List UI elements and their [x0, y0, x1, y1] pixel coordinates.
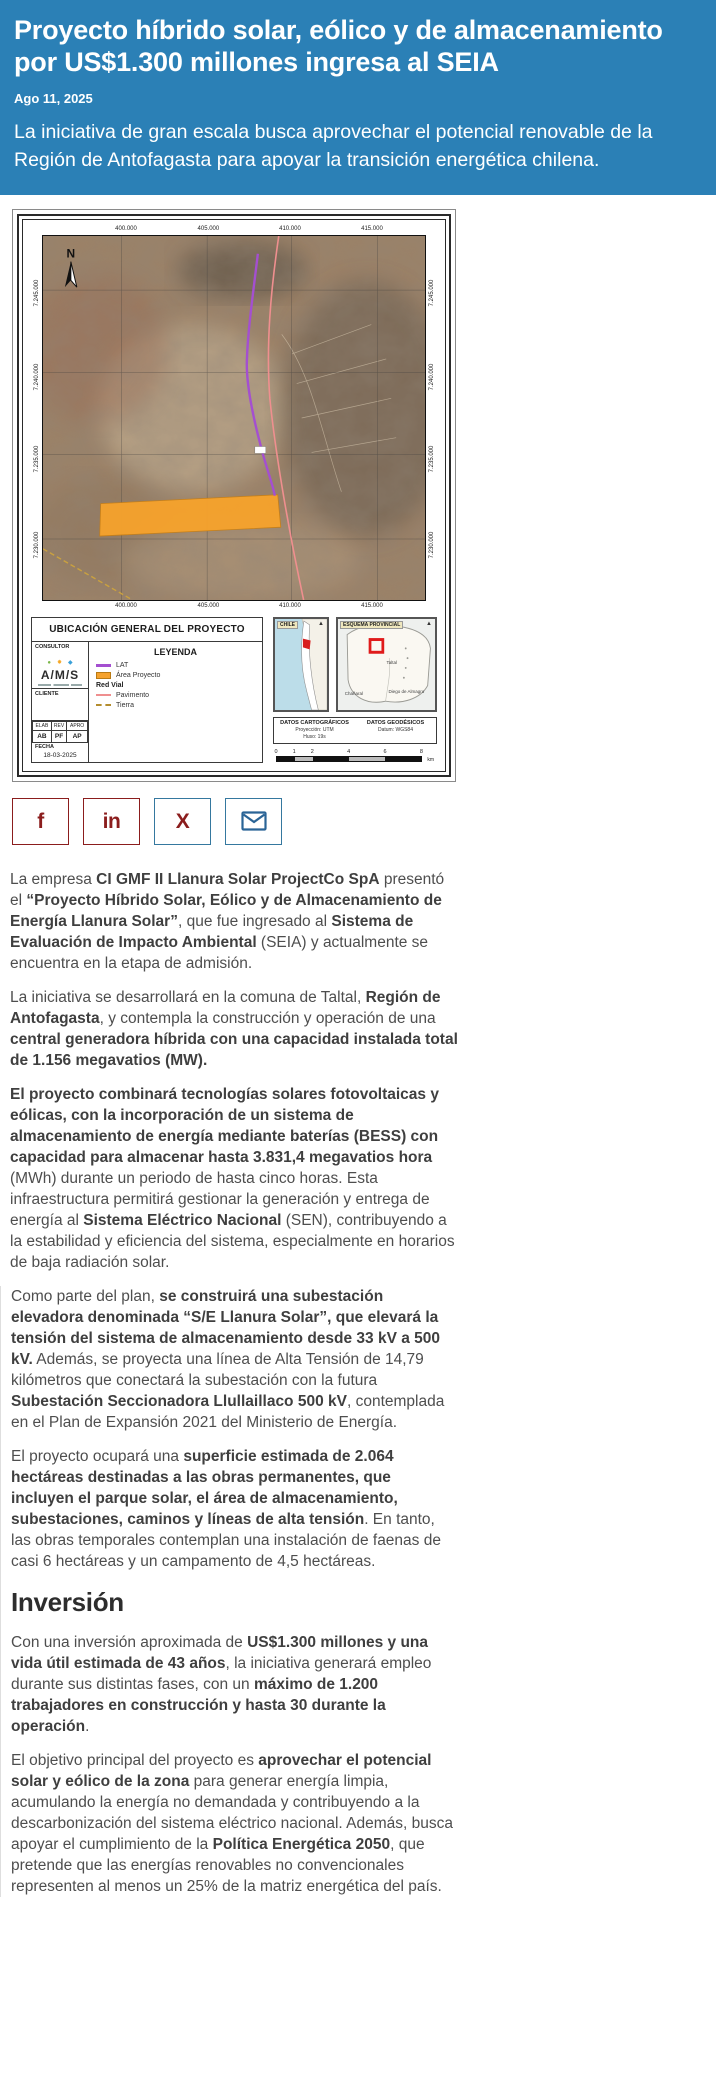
legend-items: LATÁrea ProyectoRed VialPavimentoTierra [96, 662, 255, 709]
coord-label: 405.000 [198, 226, 220, 232]
article-header: Proyecto híbrido solar, eólico y de alma… [0, 0, 716, 195]
share-row: finX [12, 798, 716, 845]
coord-label: 7.245.000 [429, 279, 435, 307]
map-coords-top: 400.000405.000410.000415.000 [51, 226, 417, 235]
email-icon [241, 811, 267, 831]
consultor-logo: ●✸◆ A/M/S [32, 651, 88, 688]
facebook-share-button[interactable]: f [12, 798, 69, 845]
article-paragraph: La empresa CI GMF II Llanura Solar Proje… [10, 869, 458, 974]
legend-item: Pavimento [96, 692, 255, 699]
legend-swatch [96, 704, 111, 706]
chile-inset-map: CHILE ▲ [273, 617, 329, 712]
coord-label: 7.230.000 [429, 531, 435, 559]
coord-label: 410.000 [279, 603, 301, 609]
coord-label: 7.240.000 [34, 363, 40, 391]
project-location-map: 400.000405.000410.000415.000 7.245.0007.… [12, 209, 456, 782]
article-paragraph: La iniciativa se desarrollará en la comu… [10, 987, 458, 1071]
legend-item: Área Proyecto [96, 672, 255, 679]
legend-swatch [96, 694, 111, 696]
cliente-label: CLIENTE [32, 689, 88, 697]
map-frame-outer: 400.000405.000410.000415.000 7.245.0007.… [17, 214, 451, 777]
coord-label: 410.000 [279, 226, 301, 232]
approval-table: ELAB REV APRO AB PF AP [32, 720, 88, 743]
legend-item: Red Vial [96, 682, 255, 689]
linkedin-icon: in [103, 811, 121, 832]
consultor-label: CONSULTOR [32, 642, 88, 650]
map-legend: LEYENDA LATÁrea ProyectoRed VialPaviment… [89, 642, 262, 762]
coord-label: 7.230.000 [34, 531, 40, 559]
north-arrow-icon: ▲ [426, 621, 432, 627]
satellite-terrain: N [43, 236, 425, 600]
linkedin-share-button[interactable]: in [83, 798, 140, 845]
provincial-inset-map: ESQUEMA PROVINCIAL ▲ Taltal Chañaral [336, 617, 437, 712]
legend-item: LAT [96, 662, 255, 669]
email-share-button[interactable] [225, 798, 282, 845]
drop-icon: ◆ [68, 660, 73, 666]
map-reference-block: CHILE ▲ ESQUEMA PROVINCIAL ▲ [273, 617, 437, 763]
map-title: UBICACIÓN GENERAL DEL PROYECTO [32, 618, 262, 642]
map-info-panel: UBICACIÓN GENERAL DEL PROYECTO CONSULTOR… [31, 617, 437, 763]
article-paragraph: El objetivo principal del proyecto es ap… [11, 1750, 458, 1897]
legend-swatch [96, 664, 111, 667]
map-coords-right: 7.245.0007.240.0007.235.0007.230.000 [426, 235, 437, 601]
coord-label: 400.000 [115, 603, 137, 609]
article-quoted: Como parte del plan, se construirá una s… [0, 1286, 458, 1897]
section-heading: Inversión [11, 1588, 458, 1618]
map-title-block: UBICACIÓN GENERAL DEL PROYECTO CONSULTOR… [31, 617, 263, 763]
map-coords-left: 7.245.0007.240.0007.235.0007.230.000 [31, 235, 42, 601]
legend-swatch [96, 672, 111, 679]
map-datum-box: DATOS CARTOGRÁFICOS Proyección: UTM Huso… [273, 717, 437, 744]
coord-label: 7.235.000 [429, 445, 435, 473]
coord-label: 405.000 [198, 603, 220, 609]
coord-label: 415.000 [361, 603, 383, 609]
map-scale-bar: 012468 km [273, 749, 437, 763]
north-arrow-icon: ▲ [318, 621, 324, 627]
article-lead: La empresa CI GMF II Llanura Solar Proje… [10, 869, 458, 1273]
article-deck: La iniciativa de gran escala busca aprov… [14, 119, 702, 174]
svg-text:N: N [67, 246, 76, 260]
sun-icon: ✸ [57, 660, 62, 666]
leaf-icon: ● [47, 660, 51, 666]
article-paragraph: El proyecto combinará tecnologías solare… [10, 1084, 458, 1273]
article-body: La empresa CI GMF II Llanura Solar Proje… [10, 869, 458, 1897]
facebook-icon: f [37, 811, 44, 832]
legend-item: Tierra [96, 702, 255, 709]
article-paragraph: Con una inversión aproximada de US$1.300… [11, 1632, 458, 1737]
page-title: Proyecto híbrido solar, eólico y de alma… [14, 14, 674, 78]
article-date: Ago 11, 2025 [14, 91, 702, 106]
coord-label: 7.245.000 [34, 279, 40, 307]
coord-label: 400.000 [115, 226, 137, 232]
map-coords-bottom: 400.000405.000410.000415.000 [51, 603, 417, 612]
fecha-row: FECHA 18-03-2025 [32, 743, 88, 762]
coord-label: 7.240.000 [429, 363, 435, 391]
map-frame-inner: 400.000405.000410.000415.000 7.245.0007.… [22, 219, 446, 772]
coord-label: 415.000 [361, 226, 383, 232]
article-paragraph: Como parte del plan, se construirá una s… [11, 1286, 458, 1433]
article-paragraph: El proyecto ocupará una superficie estim… [11, 1446, 458, 1572]
satellite-image: N [42, 235, 426, 601]
x-icon: X [176, 811, 190, 832]
coord-label: 7.235.000 [34, 445, 40, 473]
chile-map-shape [275, 619, 327, 710]
line-label-chip [255, 446, 266, 453]
x-share-button[interactable]: X [154, 798, 211, 845]
